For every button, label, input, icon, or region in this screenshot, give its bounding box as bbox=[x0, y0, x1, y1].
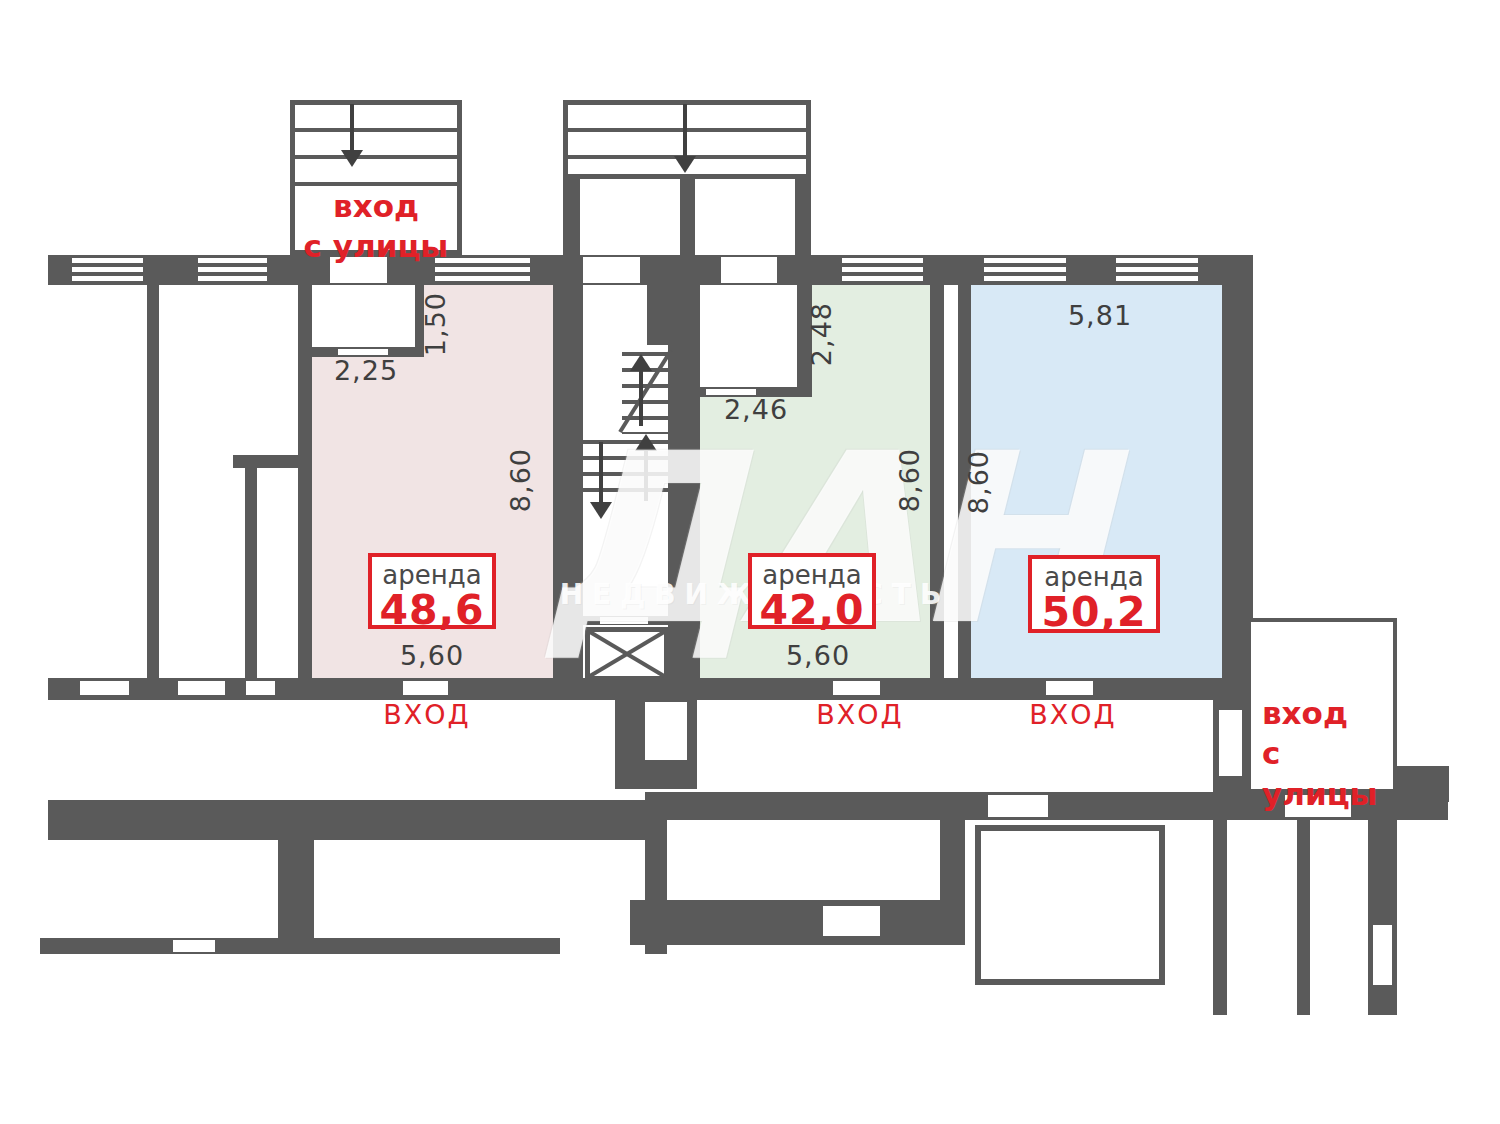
window bbox=[1116, 258, 1198, 281]
door-opening bbox=[721, 257, 777, 283]
wall-segment bbox=[563, 179, 580, 257]
dim-niche-depth: 2,48 bbox=[806, 302, 837, 366]
door-opening bbox=[80, 681, 129, 695]
door-opening bbox=[1219, 710, 1242, 776]
wall-segment bbox=[147, 285, 159, 683]
wall-segment bbox=[1213, 820, 1227, 1015]
door-opening bbox=[645, 702, 687, 760]
wall-segment bbox=[1297, 820, 1310, 1015]
window bbox=[842, 258, 923, 281]
wall-segment bbox=[48, 800, 648, 840]
unit-42-0-area-badge: аренда 42,0 bbox=[748, 553, 876, 629]
lower-room bbox=[975, 825, 1165, 985]
floor-plan: вход с улицы bbox=[0, 0, 1500, 1124]
door-opening bbox=[246, 681, 275, 695]
dim-depth: 8,60 bbox=[963, 450, 994, 514]
entrance-label-line1: вход bbox=[1262, 693, 1402, 733]
door-opening bbox=[173, 940, 215, 952]
entrance-label-line2: с улицы bbox=[292, 226, 460, 266]
entrance-steps bbox=[295, 105, 457, 190]
door-opening bbox=[1046, 681, 1093, 695]
unit-50-2-area-badge: аренда 50,2 bbox=[1028, 555, 1160, 633]
dim-width: 5,60 bbox=[392, 640, 472, 671]
wall-segment bbox=[1368, 820, 1397, 1015]
unit-42-0-entry-label: ВХОД bbox=[815, 699, 905, 730]
wall-segment bbox=[795, 179, 811, 257]
dim-width: 5,60 bbox=[778, 640, 858, 671]
wall-segment bbox=[40, 938, 560, 954]
unit-48-6-area-badge: аренда 48,6 bbox=[368, 553, 496, 629]
street-entrance-right-label: вход с улицы bbox=[1262, 693, 1402, 814]
dim-notch-width: 2,25 bbox=[328, 355, 404, 386]
street-entrance-top-left-label: вход с улицы bbox=[292, 186, 460, 267]
wall-segment bbox=[233, 455, 298, 468]
entrance-label-line1: вход bbox=[292, 186, 460, 226]
window bbox=[198, 258, 267, 281]
arrow-down-icon bbox=[341, 104, 363, 167]
wall-segment bbox=[680, 179, 695, 257]
unit-area: 42,0 bbox=[752, 590, 872, 631]
wall-segment bbox=[940, 820, 965, 905]
door-opening bbox=[403, 681, 448, 695]
door-opening bbox=[988, 795, 1048, 817]
dim-notch-depth: 1,50 bbox=[420, 292, 451, 356]
entrance-label-line2: с улицы bbox=[1262, 733, 1402, 814]
dim-width: 5,81 bbox=[1058, 300, 1142, 331]
unit-50-2-entry-label: ВХОД bbox=[1028, 699, 1118, 730]
dim-depth: 8,60 bbox=[894, 448, 925, 512]
unit-48-6-notch bbox=[312, 285, 415, 347]
wall-segment bbox=[298, 285, 312, 683]
unit-area: 50,2 bbox=[1032, 592, 1156, 633]
door-opening bbox=[823, 906, 880, 936]
dim-depth: 8,60 bbox=[505, 448, 536, 512]
window bbox=[72, 258, 143, 281]
window bbox=[984, 258, 1066, 281]
unit-48-6-entry-label: ВХОД bbox=[382, 699, 472, 730]
wall-segment bbox=[645, 792, 1213, 820]
unit-area: 48,6 bbox=[372, 590, 492, 631]
door-opening bbox=[583, 257, 640, 283]
door-opening bbox=[833, 681, 880, 695]
door-opening bbox=[178, 681, 225, 695]
door-opening bbox=[1373, 925, 1392, 985]
wall-segment bbox=[630, 900, 965, 945]
wall-segment bbox=[245, 468, 257, 683]
dim-niche-width: 2,46 bbox=[716, 394, 796, 425]
arrow-down-icon bbox=[674, 104, 696, 173]
wall-segment bbox=[647, 285, 668, 345]
wall-segment bbox=[278, 840, 314, 940]
